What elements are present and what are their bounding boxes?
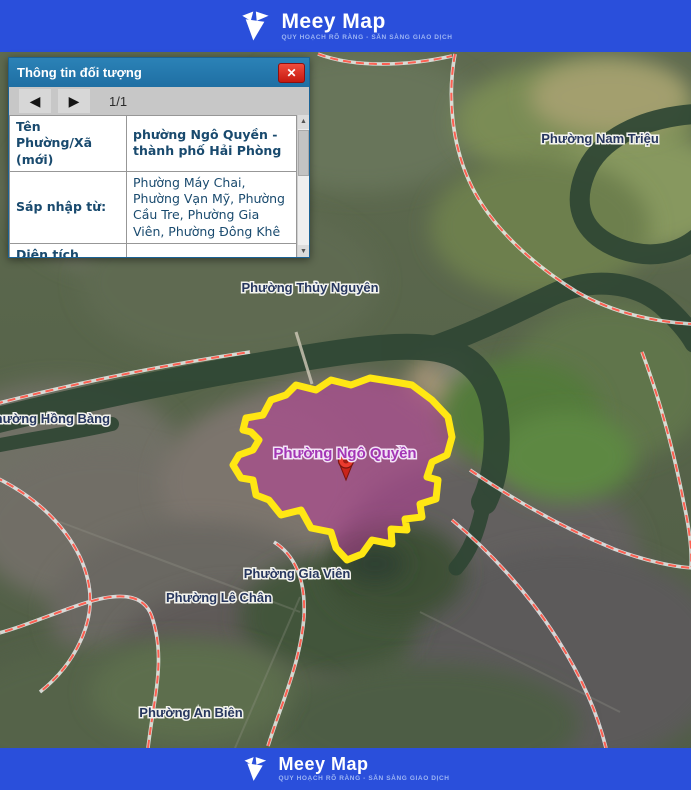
info-popup: Thông tin đối tượng ✕ ◀ ▶ 1/1 Tên Phường… (8, 57, 310, 258)
scrollbar-thumb[interactable] (298, 130, 309, 176)
next-button[interactable]: ▶ (58, 89, 90, 113)
map-label-hong-bang: Phường Hồng Bàng (0, 411, 110, 426)
popup-pager-bar: ◀ ▶ 1/1 (9, 87, 309, 115)
popup-title: Thông tin đối tượng (17, 65, 278, 80)
prev-icon: ◀ (30, 93, 41, 109)
app-window: Meey Map QUY HOẠCH RÕ RÀNG - SẴN SÀNG GI… (0, 0, 691, 790)
bottom-footer: Meey Map QUY HOẠCH RÕ RÀNG - SẴN SÀNG GI… (0, 748, 691, 790)
table-row: Sáp nhập từ: Phường Máy Chai, Phường Vạn… (10, 171, 297, 243)
map-label-nam-trieu: Phường Nam Triệu (541, 131, 659, 146)
row-value: Phường Máy Chai, Phường Vạn Mỹ, Phường C… (127, 171, 297, 243)
brand-tagline: QUY HOẠCH RÕ RÀNG - SẴN SÀNG GIAO DỊCH (281, 35, 452, 42)
map-label-le-chan: Phường Lê Chân (166, 590, 272, 605)
scroll-down-icon[interactable]: ▼ (298, 245, 309, 258)
row-label: Diện tích (km²) (10, 243, 127, 258)
meeymap-logo-icon (238, 9, 272, 43)
table-row: Diện tích (km²) 5,81 (10, 243, 297, 258)
close-button[interactable]: ✕ (278, 63, 305, 83)
pager-label: 1/1 (109, 94, 127, 109)
popup-scrollbar[interactable]: ▲ ▼ (297, 115, 309, 258)
row-label: Sáp nhập từ: (10, 171, 127, 243)
map-label-thuy-nguyen: Phường Thủy Nguyên (241, 280, 378, 295)
brand-name: Meey Map (281, 11, 452, 32)
top-header: Meey Map QUY HOẠCH RÕ RÀNG - SẴN SÀNG GI… (0, 0, 691, 52)
map-label-an-bien: Phường An Biên (139, 705, 242, 720)
meeymap-logo-icon (241, 755, 269, 783)
popup-body: Tên Phường/Xã (mới) phường Ngô Quyền - t… (9, 115, 309, 258)
brand-tagline: QUY HOẠCH RÕ RÀNG - SẴN SÀNG GIAO DỊCH (278, 776, 449, 783)
map-label-ngo-quyen: Phường Ngô Quyền (273, 445, 416, 462)
ward-info-table: Tên Phường/Xã (mới) phường Ngô Quyền - t… (9, 115, 297, 258)
table-row: Tên Phường/Xã (mới) phường Ngô Quyền - t… (10, 116, 297, 172)
close-icon: ✕ (286, 66, 296, 80)
row-value: phường Ngô Quyền - thành phố Hải Phòng (127, 116, 297, 172)
map-label-gia-vien: Phường Gia Viên (244, 566, 351, 581)
popup-title-bar: Thông tin đối tượng ✕ (9, 58, 309, 87)
brand-name: Meey Map (278, 755, 449, 773)
scroll-up-icon[interactable]: ▲ (298, 115, 309, 129)
row-value: 5,81 (127, 243, 297, 258)
next-icon: ▶ (69, 93, 80, 109)
footer-brand-logo[interactable]: Meey Map QUY HOẠCH RÕ RÀNG - SẴN SÀNG GI… (241, 755, 449, 783)
brand-logo[interactable]: Meey Map QUY HOẠCH RÕ RÀNG - SẴN SÀNG GI… (238, 9, 452, 43)
prev-button[interactable]: ◀ (19, 89, 51, 113)
row-label: Tên Phường/Xã (mới) (10, 116, 127, 172)
